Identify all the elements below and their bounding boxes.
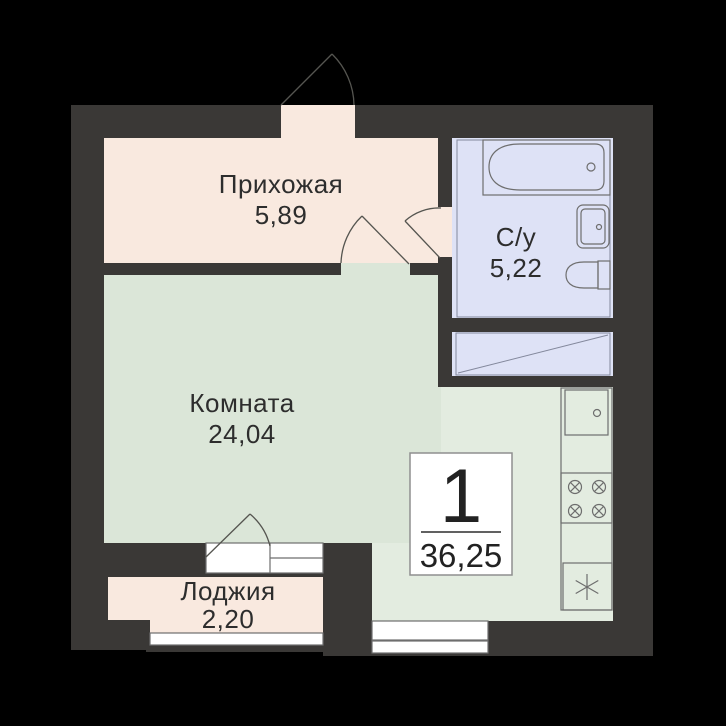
apartment-number: 1 <box>440 454 482 539</box>
wall-top-right <box>355 105 653 138</box>
wall-left <box>71 105 104 577</box>
entrance-opening <box>281 105 355 138</box>
hallway-label: Прихожая <box>219 169 343 199</box>
wall-room-bath <box>438 257 452 387</box>
wall-bath-shaft <box>452 318 613 332</box>
room-label: Комната <box>189 388 294 418</box>
bathroom-area: 5,22 <box>490 253 543 283</box>
info-box: 1 36,25 <box>410 453 512 575</box>
kitchen-window-outer <box>372 621 488 640</box>
wall-hallway-room <box>100 263 341 275</box>
total-area: 36,25 <box>420 537 503 574</box>
wall-right <box>613 105 653 656</box>
wall-below-shaft <box>441 376 613 387</box>
bathroom-label: С/у <box>496 222 537 252</box>
room-door-opening <box>341 263 410 275</box>
wall-loggia-corner <box>73 620 150 650</box>
wall-loggia-edge <box>146 645 327 652</box>
hallway-area: 5,89 <box>255 200 308 230</box>
loggia-label: Лоджия <box>180 576 275 606</box>
loggia-window <box>150 633 323 645</box>
room-area: 24,04 <box>208 419 276 449</box>
floor-plan-page: Прихожая 5,89 С/у 5,22 Комната 24,04 Лод… <box>0 0 726 726</box>
loggia-area: 2,20 <box>202 604 255 634</box>
floor-plan: Прихожая 5,89 С/у 5,22 Комната 24,04 Лод… <box>0 0 726 726</box>
wall-above-bath-door <box>438 138 452 207</box>
kitchen-window-inner <box>372 641 488 653</box>
